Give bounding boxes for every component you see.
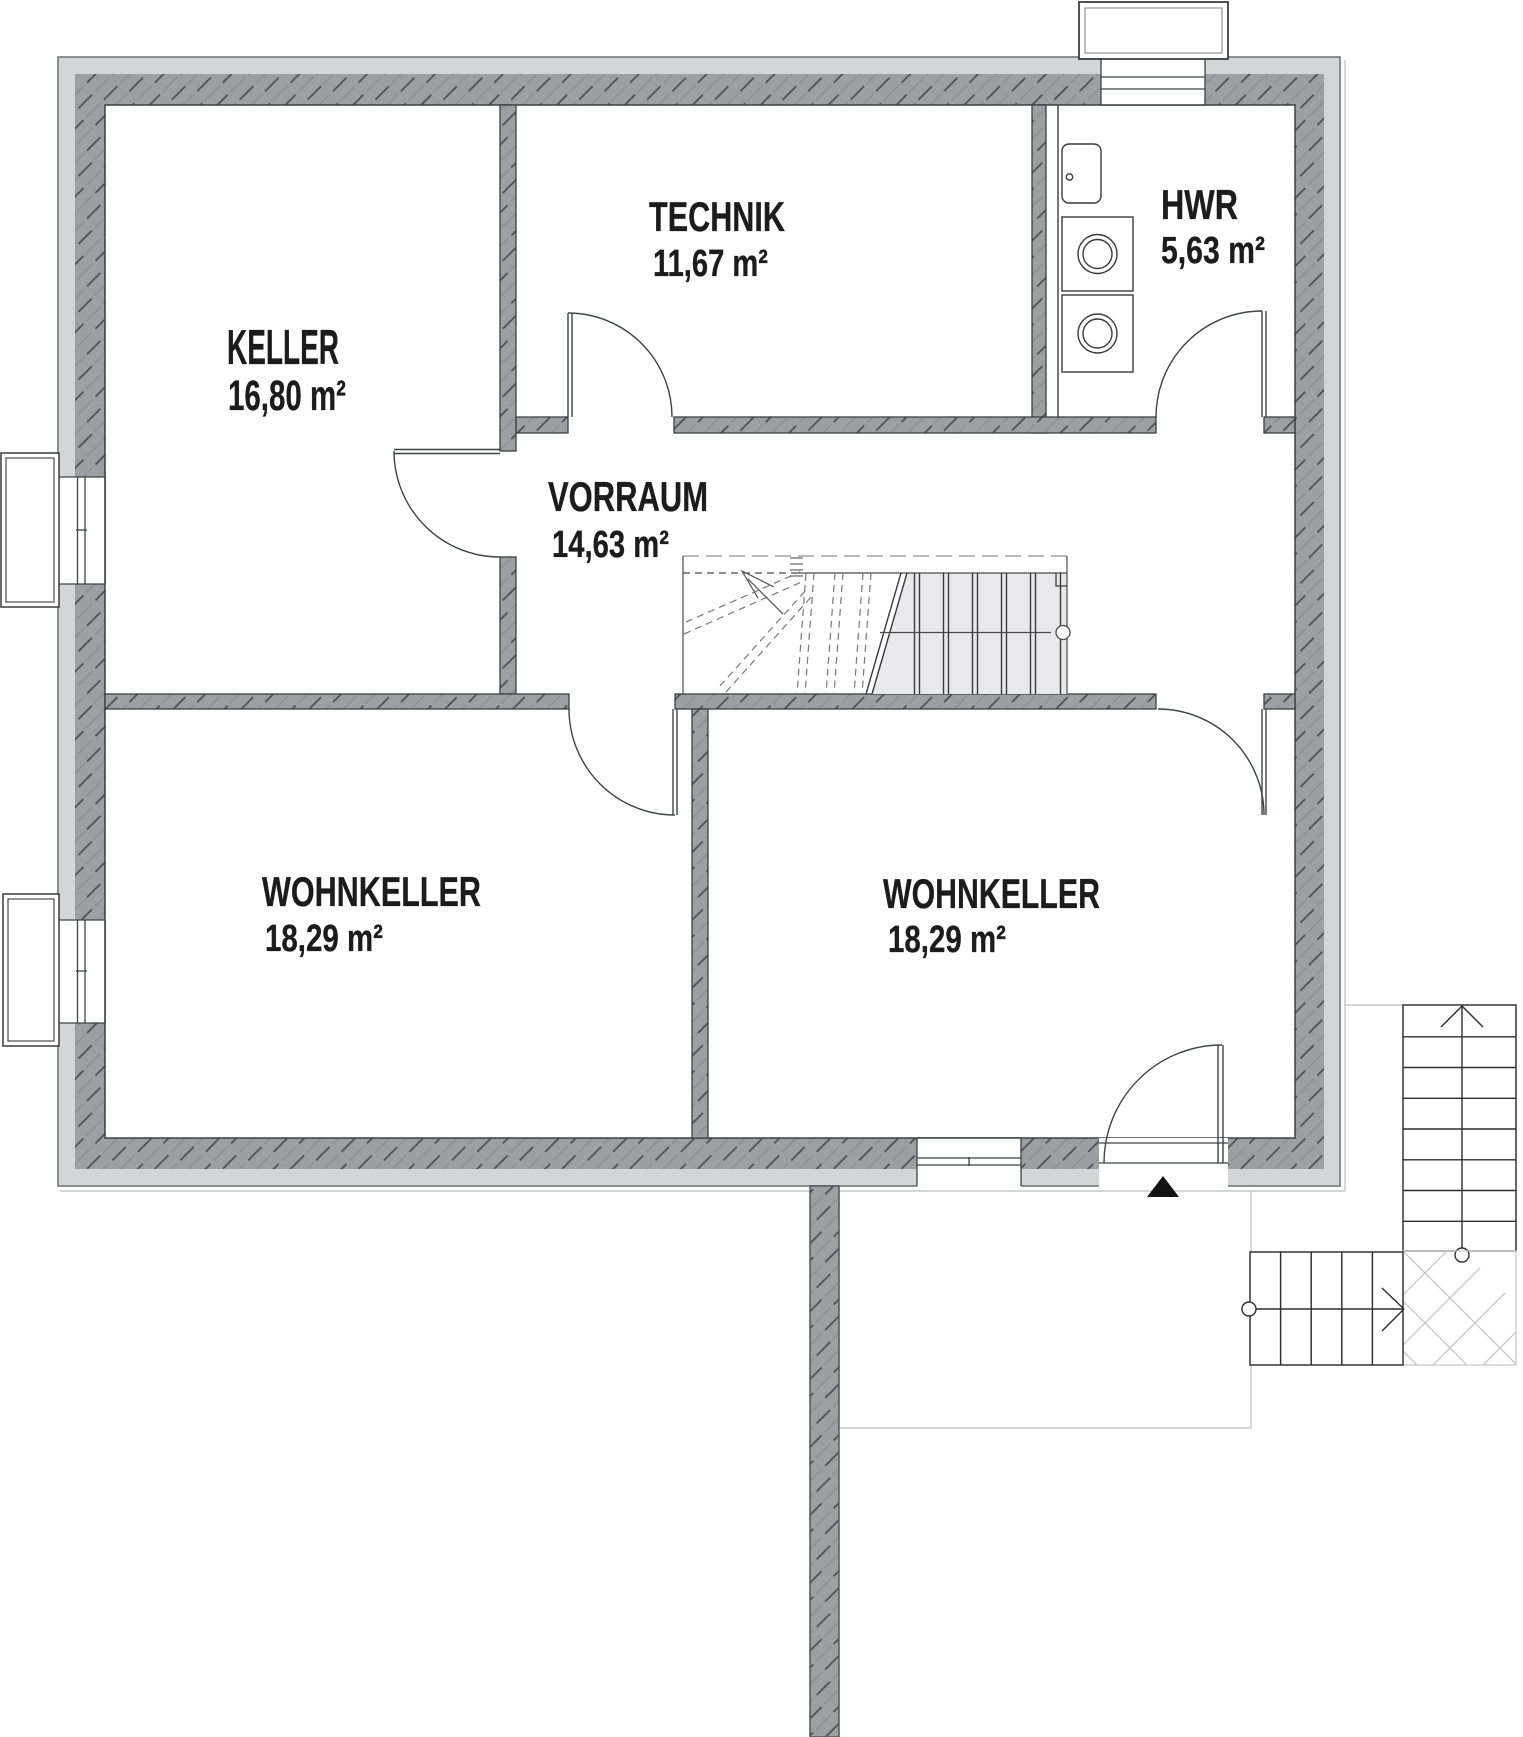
svg-text:14,63 m²: 14,63 m²: [552, 524, 669, 566]
svg-text:16,80 m²: 16,80 m²: [228, 372, 346, 420]
svg-text:11,67 m²: 11,67 m²: [653, 243, 768, 285]
svg-text:HWR: HWR: [1161, 181, 1238, 228]
svg-text:18,29 m²: 18,29 m²: [888, 919, 1006, 961]
svg-text:WOHNKELLER: WOHNKELLER: [883, 870, 1100, 917]
svg-text:WOHNKELLER: WOHNKELLER: [262, 868, 481, 915]
svg-text:5,63 m²: 5,63 m²: [1161, 230, 1265, 272]
svg-text:KELLER: KELLER: [227, 321, 339, 375]
svg-text:TECHNIK: TECHNIK: [649, 193, 785, 240]
svg-text:VORRAUM: VORRAUM: [548, 473, 708, 520]
svg-text:18,29 m²: 18,29 m²: [265, 918, 383, 960]
